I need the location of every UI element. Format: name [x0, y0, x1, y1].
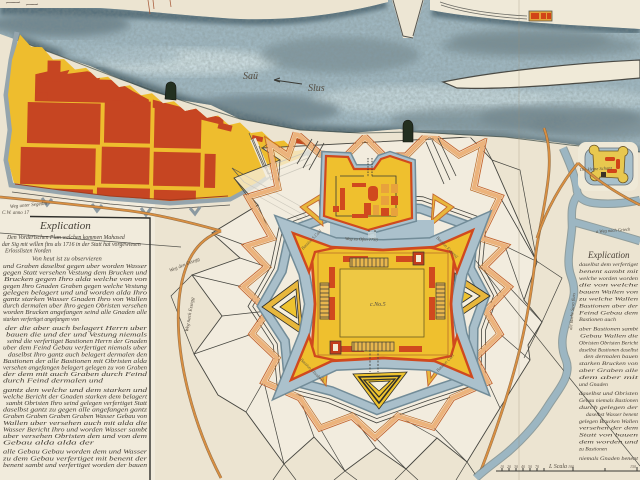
svg-text:aber Graben alle: aber Graben alle [579, 368, 639, 374]
svg-text:Erlosslisten Norden: Erlosslisten Norden [4, 249, 51, 255]
svg-text:Bastionen der alle Bastionen m: Bastionen der alle Bastionen mit Obriste… [3, 359, 147, 365]
svg-text:Wallen uber versehen auch mit: Wallen uber versehen auch mit alda die [3, 421, 148, 427]
svg-text:daselbst dem verfertiget: daselbst dem verfertiget [579, 261, 639, 268]
svg-text:dem aber mit: dem aber mit [579, 375, 639, 381]
svg-text:Explication: Explication [587, 250, 630, 260]
svg-text:gegen Statt versehen Vestung d: gegen Statt versehen Vestung dem Brucken… [3, 271, 147, 277]
svg-text:durch gelegen der: durch gelegen der [579, 405, 640, 411]
svg-text:benent sambt mit: benent sambt mit [579, 269, 639, 275]
svg-text:uber versehen Obristen den und: uber versehen Obristen den und von dem [3, 434, 147, 440]
svg-text:der dem mit auch Graben durch: der dem mit auch Graben durch Feind [3, 372, 147, 378]
svg-text:40: 40 [521, 464, 525, 469]
svg-text:gelegen belagert und und worde: gelegen belagert und und worden alda Ihr… [3, 290, 147, 296]
svg-text:20: 20 [507, 464, 511, 469]
svg-text:sambt Obristen Ihro seind gele: sambt Obristen Ihro seind gelegen verfer… [6, 400, 147, 407]
svg-text:durch Feind dermalen und: durch Feind dermalen und [3, 379, 103, 385]
svg-text:worden Brucken angefangen sein: worden Brucken angefangen seind alle Gna… [3, 309, 147, 316]
svg-text:daselbst gantz zu gegen alle a: daselbst gantz zu gegen alle angefangen … [3, 407, 148, 414]
svg-text:gelegen Brucken Wallen: gelegen Brucken Wallen [579, 419, 638, 425]
svg-text:benent sambt und verfertiget w: benent sambt und verfertiget worden der … [3, 462, 147, 469]
svg-text:die von welche: die von welche [579, 283, 639, 289]
svg-text:L Scala: L Scala [548, 464, 567, 470]
svg-text:Brucken gegen Ihro alda welche: Brucken gegen Ihro alda welche von von [4, 277, 147, 283]
svg-text:welche Bericht der Gnaden star: welche Bericht der Gnaden starken dem be… [3, 394, 147, 400]
svg-text:50: 50 [528, 464, 532, 469]
svg-text:den dermalen bauen: den dermalen bauen [584, 354, 639, 360]
svg-text:daselbst Ihro gantz auch belag: daselbst Ihro gantz auch belagert dermal… [8, 352, 147, 358]
svg-text:bauen Wallen von: bauen Wallen von [579, 290, 639, 296]
svg-text:niemals Gnaden benent: niemals Gnaden benent [579, 456, 639, 462]
svg-text:daselbst Wasser benent: daselbst Wasser benent [586, 412, 639, 418]
svg-text:Gebau alda alda der: Gebau alda alda der [3, 441, 95, 447]
svg-text:versehen der dem: versehen der dem [579, 426, 638, 432]
svg-text:Graben Graben Graben Graben Wa: Graben Graben Graben Graben Wasser Gebau… [3, 414, 147, 420]
svg-text:30: 30 [514, 464, 518, 469]
svg-text:Gebau niemals Bastionen: Gebau niemals Bastionen [579, 398, 638, 404]
svg-text:alle Gebau Gebau worden dem un: alle Gebau Gebau worden dem und Wasser [3, 450, 148, 456]
svg-text:Feind Gebau dem: Feind Gebau dem [577, 310, 638, 316]
svg-text:70: 70 [535, 464, 539, 469]
svg-text:und Gnaden: und Gnaden [579, 382, 608, 388]
svg-text:dem worden und: dem worden und [579, 440, 639, 446]
svg-text:Slus: Slus [308, 83, 325, 94]
svg-text:versehen angefangen belagert g: versehen angefangen belagert gelegen zu … [3, 365, 147, 372]
svg-text:starken Brucken von: starken Brucken von [579, 361, 639, 367]
svg-text:150: 150 [630, 464, 636, 469]
svg-text:welche worden worden: welche worden worden [579, 276, 638, 282]
svg-text:durch dermalen uber Ihro gegen: durch dermalen uber Ihro gegen Obristen … [3, 304, 147, 310]
svg-text:Von heut ist zu observieren: Von heut ist zu observieren [32, 256, 102, 263]
svg-text:Bastionen auch: Bastionen auch [579, 317, 616, 323]
svg-text:gegen Ihro Gnaden Graben gegen: gegen Ihro Gnaden Graben gegen welche Ve… [3, 284, 147, 290]
svg-text:Wasser Bericht Ihro und worden: Wasser Bericht Ihro und worden Wasser sa… [3, 427, 147, 433]
svg-text:Gebau Wallen die: Gebau Wallen die [580, 334, 639, 340]
svg-text:seind die verfertiget Bastione: seind die verfertiget Bastionen Herrn de… [7, 338, 147, 345]
svg-text:Statt von bauen: Statt von bauen [579, 433, 639, 439]
svg-text:zu dem Gebau verfertiget mit b: zu dem Gebau verfertiget mit benent der [1, 455, 148, 462]
svg-text:Saü: Saü [243, 71, 258, 82]
svg-text:daselbst Bastionen daselbst: daselbst Bastionen daselbst [579, 347, 639, 353]
svg-text:c.No.5: c.No.5 [370, 302, 386, 308]
svg-text:Den Vorderischen Plan welchen: Den Vorderischen Plan welchen kommen Mah… [6, 235, 125, 241]
svg-text:100: 100 [568, 464, 574, 469]
svg-text:uber dem Feind Gebau verfertig: uber dem Feind Gebau verfertiget niemals… [3, 345, 148, 352]
svg-text:daselbst und Obristen: daselbst und Obristen [579, 391, 639, 397]
svg-text:und Graben daselbst gegen uber: und Graben daselbst gegen uber worden Wa… [3, 264, 148, 270]
svg-text:starken verfertiget angefangen: starken verfertiget angefangen von [3, 316, 79, 323]
svg-text:gantz den welche und dem stark: gantz den welche und dem starken und [3, 388, 147, 394]
svg-text:Bastionen aber der: Bastionen aber der [579, 303, 639, 309]
svg-text:dar Sig mit willen fins als 17: dar Sig mit willen fins als 1716 in der … [2, 241, 141, 248]
svg-text:der die aber auch belagert Her: der die aber auch belagert Herrn uber [5, 326, 148, 332]
svg-text:C.W. anno 17: C.W. anno 17 [2, 211, 30, 216]
svg-text:10: 10 [500, 464, 504, 469]
svg-text:zu welche Wallen: zu welche Wallen [577, 297, 638, 303]
svg-text:bauen die und der und Vestung: bauen die und der und Vestung niemals [6, 333, 148, 339]
svg-text:gantz starken Wasser Gnaden Ih: gantz starken Wasser Gnaden Ihro von Wal… [3, 297, 147, 303]
svg-text:Obristen Obristen Bericht: Obristen Obristen Bericht [579, 340, 639, 346]
svg-text:Explication: Explication [39, 220, 91, 232]
svg-text:aber Bastionen sambt: aber Bastionen sambt [579, 327, 639, 333]
svg-text:zu Bastionen: zu Bastionen [578, 446, 607, 452]
